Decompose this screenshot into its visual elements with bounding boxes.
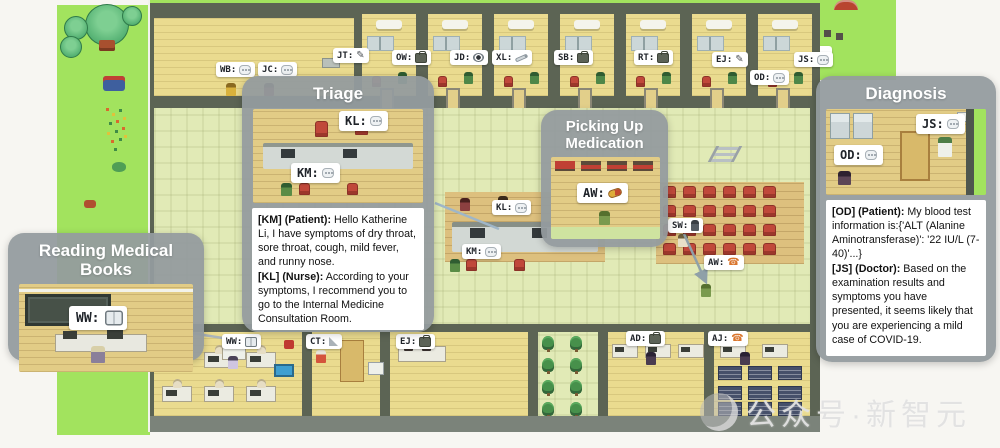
- chair-cell: [723, 186, 736, 198]
- cabinet: [853, 113, 873, 139]
- prG-cell: [530, 72, 539, 84]
- diagnosis-tag-js: JS:: [916, 114, 965, 134]
- walking-person-icon: [691, 220, 699, 231]
- agent-tag-ej-bottom: EJ:: [396, 334, 435, 349]
- desk-cell: [162, 386, 192, 402]
- agent-id: AJ:: [712, 334, 728, 344]
- tree-small: [122, 6, 142, 26]
- briefcase-icon: [577, 53, 589, 63]
- floor-strip: [551, 227, 660, 239]
- triage-tag-kl: KL:: [339, 111, 388, 131]
- chair-cell: [703, 243, 716, 255]
- chair-cell: [743, 205, 756, 217]
- briefcase-icon: [657, 53, 669, 63]
- speech-bubble-icon: [485, 247, 497, 257]
- shelf-cell: [718, 366, 742, 380]
- agent-id: EJ:: [716, 55, 732, 65]
- agent-id: CT:: [310, 337, 326, 347]
- cabinet: [830, 113, 850, 139]
- dialog-text: Based on the examination results and sym…: [832, 263, 973, 346]
- agent-id: EJ:: [400, 337, 416, 347]
- patient-sprite: [599, 211, 610, 225]
- tree-trunk: [99, 40, 115, 51]
- tree-small: [60, 36, 82, 58]
- chair-cell: [723, 243, 736, 255]
- plant-cell: [542, 402, 554, 416]
- agent-id: RT:: [638, 53, 654, 63]
- plant-cell: [570, 358, 582, 372]
- phone-icon: [731, 333, 743, 344]
- agent-id: SB:: [558, 53, 574, 63]
- triage-screenshot: KL: KM:: [253, 109, 423, 203]
- agent-tag-aj: AJ:: [708, 331, 748, 346]
- chair-cell: [743, 243, 756, 255]
- door-cell: [644, 88, 658, 110]
- agent-id: AW:: [708, 258, 724, 268]
- dialog-line: [KM] (Patient): Hello Katherine Li, I ha…: [258, 213, 418, 270]
- agent-tag-sb: SB:: [554, 50, 593, 65]
- indoor-plants: [542, 336, 582, 416]
- mushroom-sprite: [834, 0, 858, 10]
- grass-right: [820, 0, 896, 80]
- agent-id: OD:: [754, 73, 770, 83]
- chair-cell: [663, 243, 676, 255]
- agent-id: AD:: [630, 334, 646, 344]
- wall-trim: [19, 289, 193, 292]
- set-square-icon: [329, 337, 338, 346]
- prG-cell: [596, 72, 605, 84]
- door-cell: [776, 88, 790, 110]
- agent-tag-ad: AD:: [626, 331, 665, 346]
- agent-tag-od: OD:: [750, 70, 789, 85]
- plant-cell: [542, 358, 554, 372]
- agent-tag-rt: RT:: [634, 50, 673, 65]
- pen-icon: [356, 50, 364, 61]
- desk2-cell: [678, 344, 704, 358]
- speech-bubble-icon: [239, 65, 251, 75]
- door-cell: [512, 88, 526, 110]
- agent-id: KM:: [297, 166, 319, 180]
- chair-cell: [763, 224, 776, 236]
- chair-cell: [763, 205, 776, 217]
- pharmacy-counter-tops: [555, 165, 575, 169]
- chair-cell: [743, 186, 756, 198]
- agent-tag-sw: SW:: [668, 218, 703, 233]
- reader-sprite: [91, 346, 105, 363]
- chair-cell: [683, 205, 696, 217]
- monitor: [343, 149, 357, 158]
- dialog-line: [OD] (Patient): My blood test informatio…: [832, 205, 980, 262]
- callout-reading-medical-books: Reading Medical Books WW:: [8, 233, 204, 361]
- exam-table: [900, 131, 930, 181]
- plant-cell: [570, 380, 582, 394]
- pharmacy-desks: [720, 344, 788, 358]
- patient-sprite: [281, 183, 292, 196]
- desk-items: [63, 331, 77, 339]
- patient-sprite: [450, 259, 460, 272]
- pen-icon: [735, 54, 743, 65]
- ct-staff-sprite: [316, 350, 326, 363]
- desk2-cell: [762, 344, 788, 358]
- desk-cell: [204, 386, 234, 402]
- speech-bubble-icon: [281, 65, 293, 75]
- agent-id: KL:: [345, 114, 367, 128]
- agent-id: WB:: [220, 65, 236, 75]
- prG-cell: [728, 72, 737, 84]
- agent-tag-wb: WB:: [216, 62, 255, 77]
- dialog-line: [KL] (Nurse): According to your symptoms…: [258, 270, 418, 327]
- syringe-icon: [515, 53, 529, 62]
- ct-table: [340, 340, 364, 382]
- callout-triage: Triage KL: KM: [KM] (Patient): Hello Kat…: [242, 76, 434, 332]
- red-chair: [514, 259, 525, 271]
- speaker-label: [KL] (Nurse):: [258, 271, 323, 283]
- plant-cell: [570, 336, 582, 350]
- agent-id: WW:: [76, 311, 99, 326]
- agent-tag-jt: JT:: [333, 48, 369, 63]
- book-icon: [105, 311, 123, 326]
- triage-dialog: [KM] (Patient): Hello Katherine Li, I ha…: [252, 208, 424, 330]
- aquarium-picture: [274, 364, 294, 377]
- briefcase-icon: [415, 53, 427, 63]
- agent-tag-ct: CT:: [306, 334, 342, 349]
- dispensary-desks: [612, 344, 704, 358]
- chair-cell: [703, 224, 716, 236]
- flower-box: [284, 340, 294, 349]
- callout-title: Picking Up Medication: [551, 116, 658, 157]
- prG-cell: [662, 72, 671, 84]
- prG-cell: [464, 72, 473, 84]
- reading-tag-ww: WW:: [69, 306, 127, 330]
- door-cell: [578, 88, 592, 110]
- door-cell: [446, 88, 460, 110]
- chair-cell: [763, 186, 776, 198]
- desk-cell: [246, 352, 276, 368]
- agent-id: JT:: [337, 51, 353, 61]
- agent-tag-jd: JD:: [450, 50, 488, 65]
- agent-tag-ow: OW:: [392, 50, 431, 65]
- speech-bubble-icon: [322, 168, 334, 178]
- agent-id: JD:: [454, 53, 470, 63]
- callout-diagnosis: Diagnosis JS: OD: [OD] (Patient): My blo…: [816, 76, 996, 362]
- monitor: [281, 149, 295, 158]
- watermark-text: 公众号·新智元: [746, 390, 971, 434]
- watermark-logo-icon: [700, 393, 738, 431]
- agent-id: XL:: [496, 53, 512, 63]
- pill-icon: [607, 187, 623, 199]
- callout-title: Diagnosis: [826, 82, 986, 109]
- red-chair: [299, 183, 310, 195]
- desk-items: [107, 330, 123, 339]
- reader-sprite: [228, 356, 238, 369]
- diagnosis-screenshot: JS: OD:: [826, 109, 986, 195]
- speech-bubble-icon: [947, 119, 959, 129]
- agent-id: SW:: [672, 221, 688, 231]
- diagnosis-dialog: [OD] (Patient): My blood test informatio…: [826, 200, 986, 356]
- briefcase-icon: [419, 337, 431, 347]
- medication-screenshot: AW:: [551, 157, 660, 239]
- speech-bubble-icon: [865, 150, 877, 160]
- chair-cell: [743, 224, 756, 236]
- agent-id: JC:: [262, 65, 278, 75]
- speech-bubble-icon: [773, 73, 785, 83]
- agent-id: JS:: [922, 117, 944, 131]
- speaker-label: [OD] (Patient):: [832, 206, 904, 218]
- chair-cell: [703, 205, 716, 217]
- critter-sprite: [84, 200, 96, 208]
- desk2-cell: [612, 344, 638, 358]
- plant-cell: [542, 336, 554, 350]
- pharmacy-patient-sprite: [701, 284, 711, 297]
- briefcase-icon: [649, 334, 661, 344]
- walking-patient-sprite: [678, 234, 688, 247]
- agent-tag-jc: JC:: [258, 62, 297, 77]
- medical-cart: [368, 362, 384, 375]
- flower-patch: [106, 108, 109, 111]
- patient-sprite: [838, 171, 851, 185]
- speaker-label: [JS] (Doctor):: [832, 263, 900, 275]
- agent-tag-xl: XL:: [492, 50, 532, 65]
- red-chair: [347, 183, 358, 195]
- chair-cell: [683, 186, 696, 198]
- agent-tag-ej-top: EJ:: [712, 52, 748, 67]
- doctor-sprite: [938, 137, 952, 157]
- speech-bubble-icon: [817, 55, 829, 65]
- agent-id: AW:: [583, 186, 605, 200]
- nurse-sprite: [460, 198, 470, 211]
- agent-id: JS:: [798, 55, 814, 65]
- callout-picking-up-medication: Picking Up Medication AW:: [541, 110, 668, 247]
- hospital-simulation-screenshot: WB: JC: JT: OW: JD: XL: SB: RT: EJ: JS: …: [0, 0, 1000, 448]
- door-cell: [710, 88, 724, 110]
- agent-tag-ww: WW:: [222, 334, 261, 349]
- tent-sprite: [103, 76, 125, 91]
- agent-tag-aw: AW:: [704, 255, 744, 270]
- callout-title: Reading Medical Books: [18, 239, 194, 284]
- monitor: [470, 228, 485, 238]
- agent-tag-km: KM:: [462, 244, 501, 259]
- triage-tag-km: KM:: [291, 163, 340, 183]
- phone-icon: [727, 257, 739, 268]
- grass-strip: [974, 109, 986, 195]
- callout-title: Triage: [252, 82, 424, 109]
- plant-cell: [542, 380, 554, 394]
- plant-cell: [570, 402, 582, 416]
- shelf-cell: [778, 366, 802, 380]
- chair-cell: [723, 224, 736, 236]
- prG-cell: [794, 72, 803, 84]
- diagnosis-tag-od: OD:: [834, 145, 883, 165]
- room-wall: [966, 109, 974, 195]
- dialog-line: [JS] (Doctor): Based on the examination …: [832, 262, 980, 347]
- eye-icon: [473, 53, 484, 62]
- chair-cell: [703, 186, 716, 198]
- speaker-label: [KM] (Patient):: [258, 214, 331, 226]
- agent-id: WW:: [226, 337, 242, 347]
- agent-id: OW:: [396, 53, 412, 63]
- grass-sprites: [824, 30, 831, 37]
- agent-id: KM:: [466, 247, 482, 257]
- speech-bubble-icon: [515, 203, 527, 213]
- agent-id: OD:: [840, 148, 862, 162]
- book-icon: [245, 337, 257, 347]
- chair-cell: [763, 243, 776, 255]
- agent-tag-kl: KL:: [492, 200, 531, 215]
- room-doors-row: [380, 88, 830, 110]
- agent-id: KL:: [496, 203, 512, 213]
- pharmacist-sprite: [646, 352, 656, 365]
- office-chair: [315, 121, 328, 137]
- shelf-cell: [748, 366, 772, 380]
- chair-cell: [723, 205, 736, 217]
- medication-tag-aw: AW:: [577, 183, 628, 203]
- speech-bubble-icon: [370, 116, 382, 126]
- reading-screenshot: WW:: [19, 284, 193, 372]
- red-chair: [466, 259, 477, 271]
- desk-cell: [246, 386, 276, 402]
- pharmacist-sprite: [740, 352, 750, 365]
- patient-sprite: [226, 83, 236, 96]
- agent-tag-js: JS:: [794, 52, 833, 67]
- bush: [112, 162, 126, 172]
- watermark: 公众号·新智元: [700, 390, 971, 434]
